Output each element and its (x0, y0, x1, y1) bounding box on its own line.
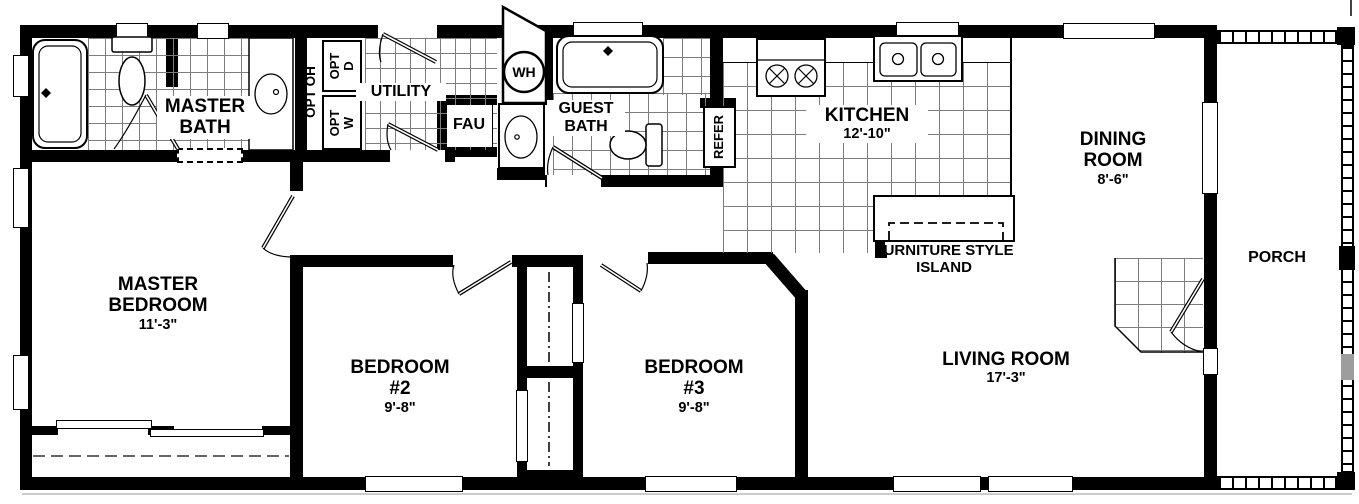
wall-bedroom3-top (648, 252, 773, 264)
opt-washer-line2: W (342, 110, 356, 137)
room-dim-master-bedroom: 11'-3" (68, 317, 248, 333)
roof-edge-tick (1350, 0, 1352, 16)
room-name-bedroom2: BEDROOM #2 (340, 357, 460, 400)
room-name-bedroom3: BEDROOM #3 (633, 357, 755, 400)
room-name-dining: DINING ROOM (1050, 129, 1176, 172)
opt-washer-line1: OPT (328, 110, 342, 137)
window-living-south-1 (893, 476, 981, 492)
wardrobe-wall-stub-1 (32, 426, 58, 435)
room-label-master-bath: MASTER BATH (157, 96, 253, 139)
window-masterbath-1 (116, 23, 148, 39)
water-heater-closet (503, 7, 546, 103)
room-dim-bedroom3: 9'-8" (633, 400, 755, 416)
porch-post-top-right (1337, 27, 1355, 45)
window-living-south-2 (988, 476, 1073, 492)
closet-bedroom3-door (572, 303, 584, 363)
wall-exterior-right (1204, 25, 1217, 490)
room-name-utility: UTILITY (356, 83, 446, 101)
window-dining (1063, 23, 1155, 39)
wall-wh-east (541, 25, 553, 105)
room-label-utility: UTILITY (356, 83, 446, 101)
opt-overhead-label: OPT OH (303, 59, 319, 125)
opening-guestbath-door (547, 175, 601, 187)
porch-entry-door-opening (1203, 348, 1218, 375)
opening-masterbedroom-door (290, 191, 303, 255)
opt-overhead-text: OPT OH (304, 66, 318, 118)
opt-dryer-line1: OPT (328, 53, 342, 80)
fau-label: FAU (445, 116, 493, 134)
master-bath-vanity (249, 38, 293, 150)
wardrobe-wall-stub-3 (262, 426, 290, 435)
room-label-master-bedroom: MASTER BEDROOM 11'-3" (68, 274, 248, 333)
room-dim-living: 17'-3" (938, 370, 1074, 386)
opt-dryer-label: OPT D (324, 41, 360, 91)
fau-text: FAU (445, 116, 493, 134)
room-name-master-bath: MASTER BATH (157, 96, 253, 139)
room-dim-kitchen: 12'-10" (806, 126, 928, 142)
porch-post-right-mid (1339, 246, 1355, 270)
room-name-master-bedroom: MASTER BEDROOM (68, 274, 248, 317)
opt-washer-label: OPT W (324, 98, 360, 148)
room-name-porch: PORCH (1239, 249, 1315, 267)
kitchen-island (873, 195, 1015, 242)
floor-plan: MASTER BATH UTILITY GUEST BATH KITCHEN 1… (0, 0, 1359, 504)
opt-dryer-line2: D (342, 53, 356, 80)
wardrobe-sliding-panel-2 (150, 429, 264, 437)
kitchen-counter (723, 38, 1012, 63)
room-label-dining: DINING ROOM 8'-6" (1050, 129, 1176, 188)
room-label-guest-bath: GUEST BATH (547, 100, 625, 136)
window-guestbath (573, 22, 643, 38)
porch-railing-top (1217, 30, 1337, 44)
porch-step (1341, 354, 1354, 380)
water-heater-label: WH (506, 65, 542, 81)
opening-utility-rear-door (378, 25, 437, 38)
island-label-line1: FURNITURE STYLE (858, 243, 1030, 260)
window-dining-porch-slider (1202, 102, 1218, 194)
window-bedroom3-south (645, 476, 737, 492)
window-kitchen-sink (896, 22, 959, 38)
room-name-living: LIVING ROOM (938, 349, 1074, 370)
window-masterbath-2 (197, 23, 229, 39)
ground-shadow-line (22, 493, 1352, 495)
room-label-living: LIVING ROOM 17'-3" (938, 349, 1074, 387)
bedroom3-door (601, 263, 647, 291)
room-label-porch: PORCH (1239, 249, 1315, 267)
island-label: FURNITURE STYLE ISLAND (858, 243, 1030, 277)
closet-bedroom3-interior (527, 267, 573, 366)
porch-post-bottom-right (1337, 472, 1355, 490)
opening-masterbath-cased (177, 148, 243, 163)
wall-guest-vanity-south (497, 168, 545, 180)
water-heater-text: WH (506, 65, 542, 81)
guest-bath-tile-floor-2 (663, 38, 710, 95)
room-name-guest-bath: GUEST BATH (547, 100, 625, 136)
window-masterbedroom-west-2 (13, 355, 29, 410)
master-bedroom-door (263, 196, 293, 257)
room-label-bedroom2: BEDROOM #2 9'-8" (340, 357, 460, 416)
porch-railing-bottom (1217, 476, 1337, 490)
room-dim-bedroom2: 9'-8" (340, 400, 460, 416)
refrigerator-text: REFER (712, 115, 726, 159)
room-label-kitchen: KITCHEN 12'-10" (806, 105, 928, 143)
closet-bedroom2-interior (527, 378, 573, 470)
refrigerator-label: REFER (711, 107, 727, 167)
window-bedroom2-south (365, 476, 463, 492)
guest-bath-tub (557, 36, 663, 93)
guest-bath-vanity (499, 104, 544, 168)
opening-utility-hall-door (390, 150, 445, 162)
room-label-bedroom3: BEDROOM #3 9'-8" (633, 357, 755, 416)
window-masterbedroom-west-1 (13, 168, 29, 228)
entry-tile-floor (1115, 258, 1203, 353)
closet-bedroom2-door (516, 390, 528, 462)
kitchen-dining-counter-edge (1010, 38, 1012, 205)
master-bath-tub (33, 40, 87, 148)
window-masterbath-west (13, 55, 29, 97)
opening-bedroom2-door (453, 255, 512, 267)
room-dim-dining: 8'-6" (1050, 172, 1176, 188)
room-name-kitchen: KITCHEN (806, 105, 928, 126)
wardrobe-sliding-panel-1 (56, 420, 152, 429)
wall-bedroom3-east (795, 290, 808, 478)
island-label-line2: ISLAND (858, 260, 1030, 277)
